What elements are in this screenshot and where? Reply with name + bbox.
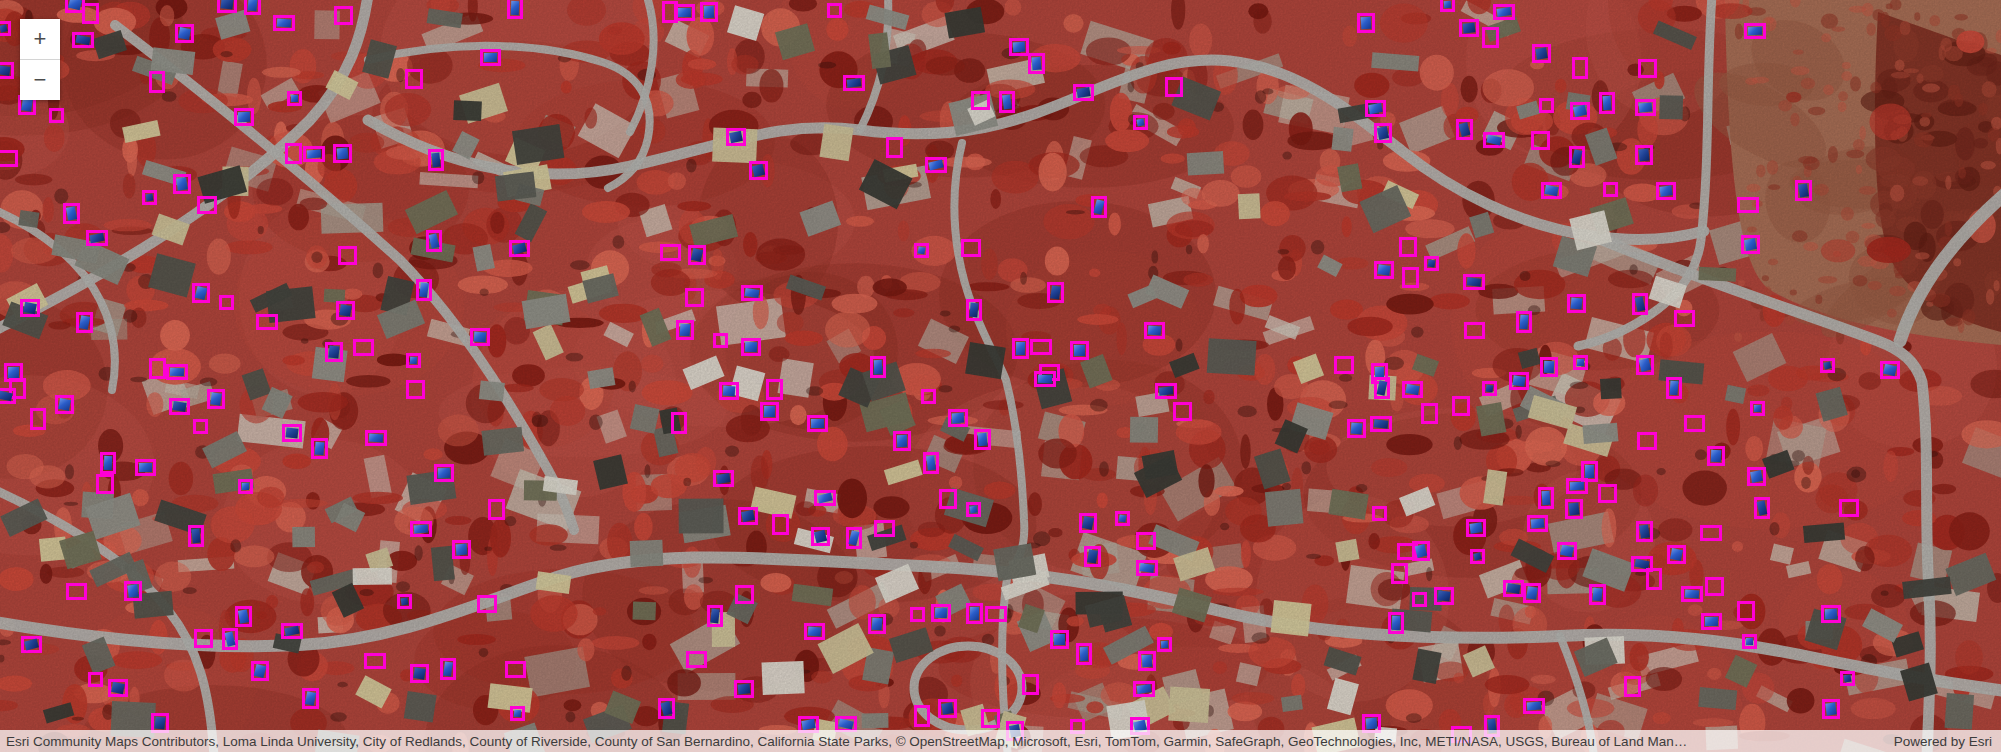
pool-detection <box>1486 134 1502 145</box>
detection-box <box>0 21 11 36</box>
detection-box <box>207 389 225 409</box>
pool-detection <box>1544 361 1554 373</box>
detection-box <box>76 312 93 333</box>
detection-box <box>1656 182 1676 200</box>
detection-box <box>1493 4 1515 20</box>
pool-detection <box>191 529 200 544</box>
pool-detection <box>0 391 13 402</box>
pool-detection <box>1570 297 1582 309</box>
detection-box <box>961 239 981 257</box>
pool-detection <box>1638 149 1649 162</box>
pool-detection <box>210 392 222 405</box>
pool-detection <box>1093 199 1104 215</box>
pool-detection <box>969 606 978 619</box>
detection-box <box>1523 583 1541 603</box>
pool-detection <box>1544 184 1558 195</box>
pool-detection <box>1473 552 1482 561</box>
detection-box <box>713 470 734 487</box>
pool-detection <box>723 386 736 397</box>
detection-box <box>921 389 936 404</box>
detection-box <box>285 143 302 164</box>
detection-box <box>674 4 695 21</box>
detection-box <box>175 24 194 43</box>
detection-box <box>0 388 16 404</box>
detection-box <box>72 32 94 48</box>
pool-detection <box>1147 325 1161 335</box>
pool-detection <box>874 360 882 374</box>
detection-box <box>1470 549 1485 564</box>
pool-detection <box>1527 702 1542 711</box>
pool-detection <box>111 682 125 694</box>
detection-box <box>1539 98 1554 113</box>
zoom-out-button[interactable]: − <box>20 60 60 100</box>
pool-detection <box>969 303 978 318</box>
pool-detection <box>763 405 774 416</box>
pool-detection <box>1415 544 1428 558</box>
pool-detection <box>23 302 37 314</box>
pool-detection <box>1038 375 1052 383</box>
detection-box <box>1347 419 1366 438</box>
detection-box <box>49 108 64 123</box>
detection-box <box>1374 261 1394 279</box>
pool-detection <box>704 6 714 18</box>
pool-detection <box>1568 503 1579 516</box>
pool-detection <box>969 505 977 513</box>
pool-detection <box>336 147 348 159</box>
detection-box <box>251 661 269 681</box>
detection-box <box>82 3 99 24</box>
detection-box <box>1570 102 1590 120</box>
detection-box <box>707 605 723 627</box>
attribution-bar: Esri Community Maps Contributors, Loma L… <box>0 730 2001 752</box>
detection-box <box>1705 577 1724 596</box>
pool-detection <box>1443 0 1451 8</box>
detection-box <box>1370 416 1392 432</box>
detection-box <box>256 314 278 330</box>
detection-box <box>686 651 707 668</box>
powered-by-esri[interactable]: Powered by Esri <box>1864 734 2001 749</box>
detection-box <box>1047 282 1064 303</box>
detection-box <box>1374 123 1392 143</box>
detection-box <box>410 664 429 683</box>
pool-detection <box>65 206 76 220</box>
pool-detection <box>1050 285 1061 299</box>
detection-box <box>1567 294 1586 313</box>
pool-detection <box>751 163 764 176</box>
pool-detection <box>1711 450 1721 462</box>
pool-detection <box>21 98 33 111</box>
detection-box <box>244 0 261 15</box>
pool-detection <box>817 492 833 503</box>
pool-detection <box>511 1 519 15</box>
pool-detection <box>195 286 208 300</box>
pool-detection <box>237 609 248 623</box>
pool-detection <box>977 432 987 446</box>
pool-detection <box>224 631 235 647</box>
detection-box <box>1133 681 1155 697</box>
detection-box <box>1091 196 1107 218</box>
detection-box <box>1667 545 1686 564</box>
detection-box <box>660 244 681 261</box>
detection-box <box>688 245 706 265</box>
pool-detection <box>154 717 165 730</box>
detection-box <box>1030 339 1052 355</box>
detection-box <box>966 502 981 517</box>
detection-box <box>1459 19 1479 37</box>
pool-detection <box>483 52 496 61</box>
pool-detection <box>738 683 751 694</box>
pool-detection <box>89 233 104 244</box>
detection-box <box>169 398 190 415</box>
pool-detection <box>78 315 89 329</box>
pool-detection <box>241 482 248 489</box>
detection-box <box>1569 146 1585 168</box>
detection-box <box>426 230 442 252</box>
detection-box <box>1466 519 1486 537</box>
detection-box <box>1034 371 1056 387</box>
detection-box <box>948 409 968 427</box>
detection-box <box>1795 180 1812 201</box>
pool-detection <box>369 434 384 443</box>
pool-detection <box>455 543 467 555</box>
pool-detection <box>1704 616 1717 625</box>
detection-box <box>55 395 74 414</box>
pool-detection <box>1463 22 1476 33</box>
detection-box <box>966 299 982 321</box>
detection-box <box>726 128 746 146</box>
detection-box <box>1744 23 1766 39</box>
detection-box <box>410 521 432 537</box>
detection-box <box>1538 487 1554 509</box>
detection-box <box>1840 671 1855 686</box>
detection-box <box>273 15 295 31</box>
detection-box <box>1372 506 1387 521</box>
detection-box <box>333 144 352 163</box>
detection-box <box>1531 131 1550 150</box>
detection-box <box>1483 132 1505 148</box>
pool-detection <box>1013 42 1026 53</box>
pool-detection <box>0 65 10 76</box>
detection-box <box>1635 99 1656 116</box>
pool-detection <box>438 468 450 478</box>
pool-detection <box>691 248 703 262</box>
pool-detection <box>1350 422 1362 434</box>
pool-detection <box>741 510 755 522</box>
pool-detection <box>1798 183 1809 197</box>
pool-detection <box>277 19 292 28</box>
detection-box <box>334 6 353 25</box>
detection-box <box>1737 197 1759 213</box>
detection-box <box>149 71 165 93</box>
pool-detection <box>58 398 71 411</box>
detection-box <box>738 507 758 525</box>
detection-box <box>1572 57 1588 79</box>
pool-detection <box>847 78 862 87</box>
detection-box <box>1464 322 1485 339</box>
pool-detection <box>1469 522 1482 534</box>
detection-box <box>1022 674 1039 695</box>
map-canvas[interactable]: + − Esri Community Maps Contributors, Lo… <box>0 0 2001 752</box>
pool-detection <box>1374 419 1389 428</box>
detection-box <box>303 146 325 162</box>
detection-box <box>1839 499 1859 517</box>
detection-box <box>874 520 895 537</box>
pool-detection <box>307 150 322 159</box>
pool-detection <box>1744 238 1757 251</box>
detection-box <box>1334 356 1354 374</box>
detection-box <box>1402 381 1423 398</box>
detection-box <box>1424 256 1439 271</box>
detection-box <box>88 672 103 687</box>
pool-detection <box>431 153 440 168</box>
pool-detection <box>127 584 139 597</box>
detection-box <box>719 382 739 400</box>
pool-detection <box>1535 47 1548 60</box>
pool-detection <box>1392 616 1400 630</box>
detection-box <box>0 150 18 167</box>
detection-box <box>868 614 886 634</box>
detection-box <box>923 452 939 474</box>
pool-detection <box>1753 404 1760 411</box>
pool-detection <box>247 0 257 11</box>
pool-detection <box>176 177 188 190</box>
detection-box <box>1165 77 1183 97</box>
detection-box <box>925 157 947 173</box>
detection-box <box>1399 237 1417 257</box>
detection-box <box>1115 511 1130 526</box>
pool-detection <box>807 626 821 636</box>
detection-box <box>1598 484 1617 503</box>
detection-box <box>1638 59 1657 78</box>
pool-detection <box>7 366 18 377</box>
pool-detection <box>1750 470 1763 483</box>
pool-detection <box>512 242 527 254</box>
detection-box <box>772 514 789 535</box>
detection-box <box>406 353 421 368</box>
pool-detection <box>419 283 429 298</box>
detection-box <box>971 91 990 110</box>
detection-box <box>406 380 425 399</box>
pool-detection <box>1603 96 1612 111</box>
pool-detection <box>75 35 90 46</box>
detection-box <box>1070 341 1089 360</box>
pool-detection <box>928 159 944 170</box>
detection-box <box>1700 525 1722 541</box>
detection-box <box>1636 355 1654 375</box>
detection-box <box>1365 100 1386 117</box>
detection-box <box>477 595 497 613</box>
pool-detection <box>952 413 965 424</box>
pool-detection <box>314 441 324 455</box>
detection-box <box>1747 467 1766 486</box>
detection-box <box>1084 546 1101 567</box>
pool-detection <box>178 27 191 40</box>
pool-detection <box>1530 518 1544 528</box>
pool-detection <box>0 24 7 33</box>
detection-box <box>827 3 842 18</box>
detection-box <box>1157 637 1172 652</box>
detection-box <box>1073 84 1094 101</box>
detection-box <box>1076 643 1092 665</box>
detection-box <box>416 279 432 301</box>
detection-box <box>1388 612 1404 634</box>
pool-detection <box>1427 259 1435 267</box>
detection-box <box>353 339 374 356</box>
detection-box <box>1821 605 1841 623</box>
pool-detection <box>1087 549 1098 563</box>
detection-box <box>470 328 490 346</box>
detection-box <box>1742 634 1757 649</box>
pool-detection <box>1405 383 1419 394</box>
pool-detection <box>1584 464 1593 477</box>
pool-detection <box>935 608 947 618</box>
pool-detection <box>443 662 453 677</box>
detection-box <box>966 603 983 624</box>
pool-detection <box>1843 674 1851 682</box>
detection-box <box>685 288 704 307</box>
detection-box <box>914 705 930 727</box>
detection-box <box>336 301 355 320</box>
pool-detection <box>413 667 426 680</box>
pool-detection <box>145 193 153 201</box>
detection-box <box>760 402 779 421</box>
detection-box <box>20 299 40 317</box>
detection-box <box>1666 377 1682 399</box>
detection-box <box>1557 542 1577 560</box>
pool-detection <box>1757 500 1768 515</box>
detection-box <box>1412 592 1427 607</box>
pool-detection <box>1377 264 1390 276</box>
detection-box <box>238 479 253 494</box>
detection-box <box>1737 601 1755 621</box>
detection-box <box>217 0 237 13</box>
pool-detection <box>716 473 730 484</box>
detection-box <box>676 320 694 340</box>
detection-box <box>434 464 454 482</box>
detection-box <box>440 658 456 680</box>
pool-detection <box>284 626 299 637</box>
pool-detection <box>745 342 757 352</box>
detection-box <box>1523 698 1545 714</box>
detection-box <box>282 424 302 442</box>
detection-box <box>488 499 505 520</box>
pool-detection <box>104 456 112 470</box>
pool-detection <box>1485 384 1493 392</box>
pool-detection <box>339 304 352 317</box>
detection-box <box>173 174 191 194</box>
zoom-in-button[interactable]: + <box>20 19 60 59</box>
detection-box <box>1482 381 1497 396</box>
pool-detection <box>1140 563 1155 573</box>
pool-detection <box>1377 380 1388 395</box>
pool-detection <box>897 435 907 447</box>
detection-box <box>1009 38 1029 56</box>
detection-box <box>1391 563 1408 584</box>
detection-box <box>365 430 387 446</box>
pool-detection <box>1748 27 1762 35</box>
detection-box <box>480 49 501 66</box>
pool-detection <box>1659 185 1672 197</box>
pool-detection <box>1467 277 1482 286</box>
pool-detection <box>414 525 429 534</box>
detection-box <box>1624 676 1641 697</box>
detection-box <box>1138 651 1156 671</box>
pool-detection <box>1576 358 1583 365</box>
pool-detection <box>660 701 672 716</box>
detection-box <box>1674 310 1695 327</box>
pool-detection <box>24 638 39 650</box>
pool-detection <box>1670 548 1683 561</box>
detection-box <box>1701 613 1722 630</box>
pool-detection <box>1142 655 1153 668</box>
detection-box <box>893 431 911 451</box>
pool-detection <box>1031 56 1041 70</box>
detection-box <box>700 2 718 22</box>
pool-detection <box>1073 344 1084 355</box>
pool-detection <box>1685 590 1700 599</box>
pool-detection <box>1823 361 1832 370</box>
detection-box <box>1516 311 1532 333</box>
detection-box <box>811 527 830 546</box>
detection-box <box>914 243 929 258</box>
detection-box <box>0 62 14 79</box>
detection-box <box>1079 513 1097 533</box>
detection-box <box>658 698 675 719</box>
pool-detection <box>1002 95 1012 110</box>
pool-detection <box>1592 587 1602 601</box>
detection-box <box>1822 699 1840 719</box>
detection-box <box>452 540 471 559</box>
pool-detection <box>221 0 234 10</box>
detection-box <box>735 585 754 604</box>
detection-box <box>166 364 188 380</box>
detection-box <box>939 489 957 509</box>
detection-box <box>235 606 252 627</box>
pool-detection <box>848 530 859 546</box>
detection-box <box>510 706 525 721</box>
detection-box <box>1637 432 1657 450</box>
pool-detection <box>677 7 690 16</box>
detection-box <box>338 246 357 265</box>
detection-box <box>193 419 208 434</box>
detection-box <box>741 285 763 301</box>
pool-detection <box>1512 375 1525 387</box>
pool-detection <box>1082 516 1094 530</box>
detection-box <box>1880 361 1900 379</box>
pool-detection <box>941 702 954 715</box>
detection-box <box>100 452 116 474</box>
pool-detection <box>801 718 815 729</box>
detection-box <box>1463 274 1485 290</box>
zoom-control: + − <box>20 19 60 100</box>
pool-detection <box>1670 381 1679 396</box>
pool-detection <box>172 401 186 412</box>
pool-detection <box>170 368 184 376</box>
detection-box <box>234 108 254 126</box>
detection-box <box>1635 145 1653 165</box>
detection-box <box>985 606 1007 622</box>
detection-box <box>505 661 526 678</box>
pool-detection <box>745 288 760 298</box>
pool-detection <box>428 233 439 249</box>
detection-box <box>1440 0 1455 12</box>
detection-box <box>63 203 80 224</box>
detection-box <box>96 474 114 494</box>
pool-detection <box>1137 684 1152 694</box>
pool-detection <box>813 529 826 542</box>
pool-detection <box>1520 315 1529 330</box>
pool-detection <box>838 718 854 729</box>
